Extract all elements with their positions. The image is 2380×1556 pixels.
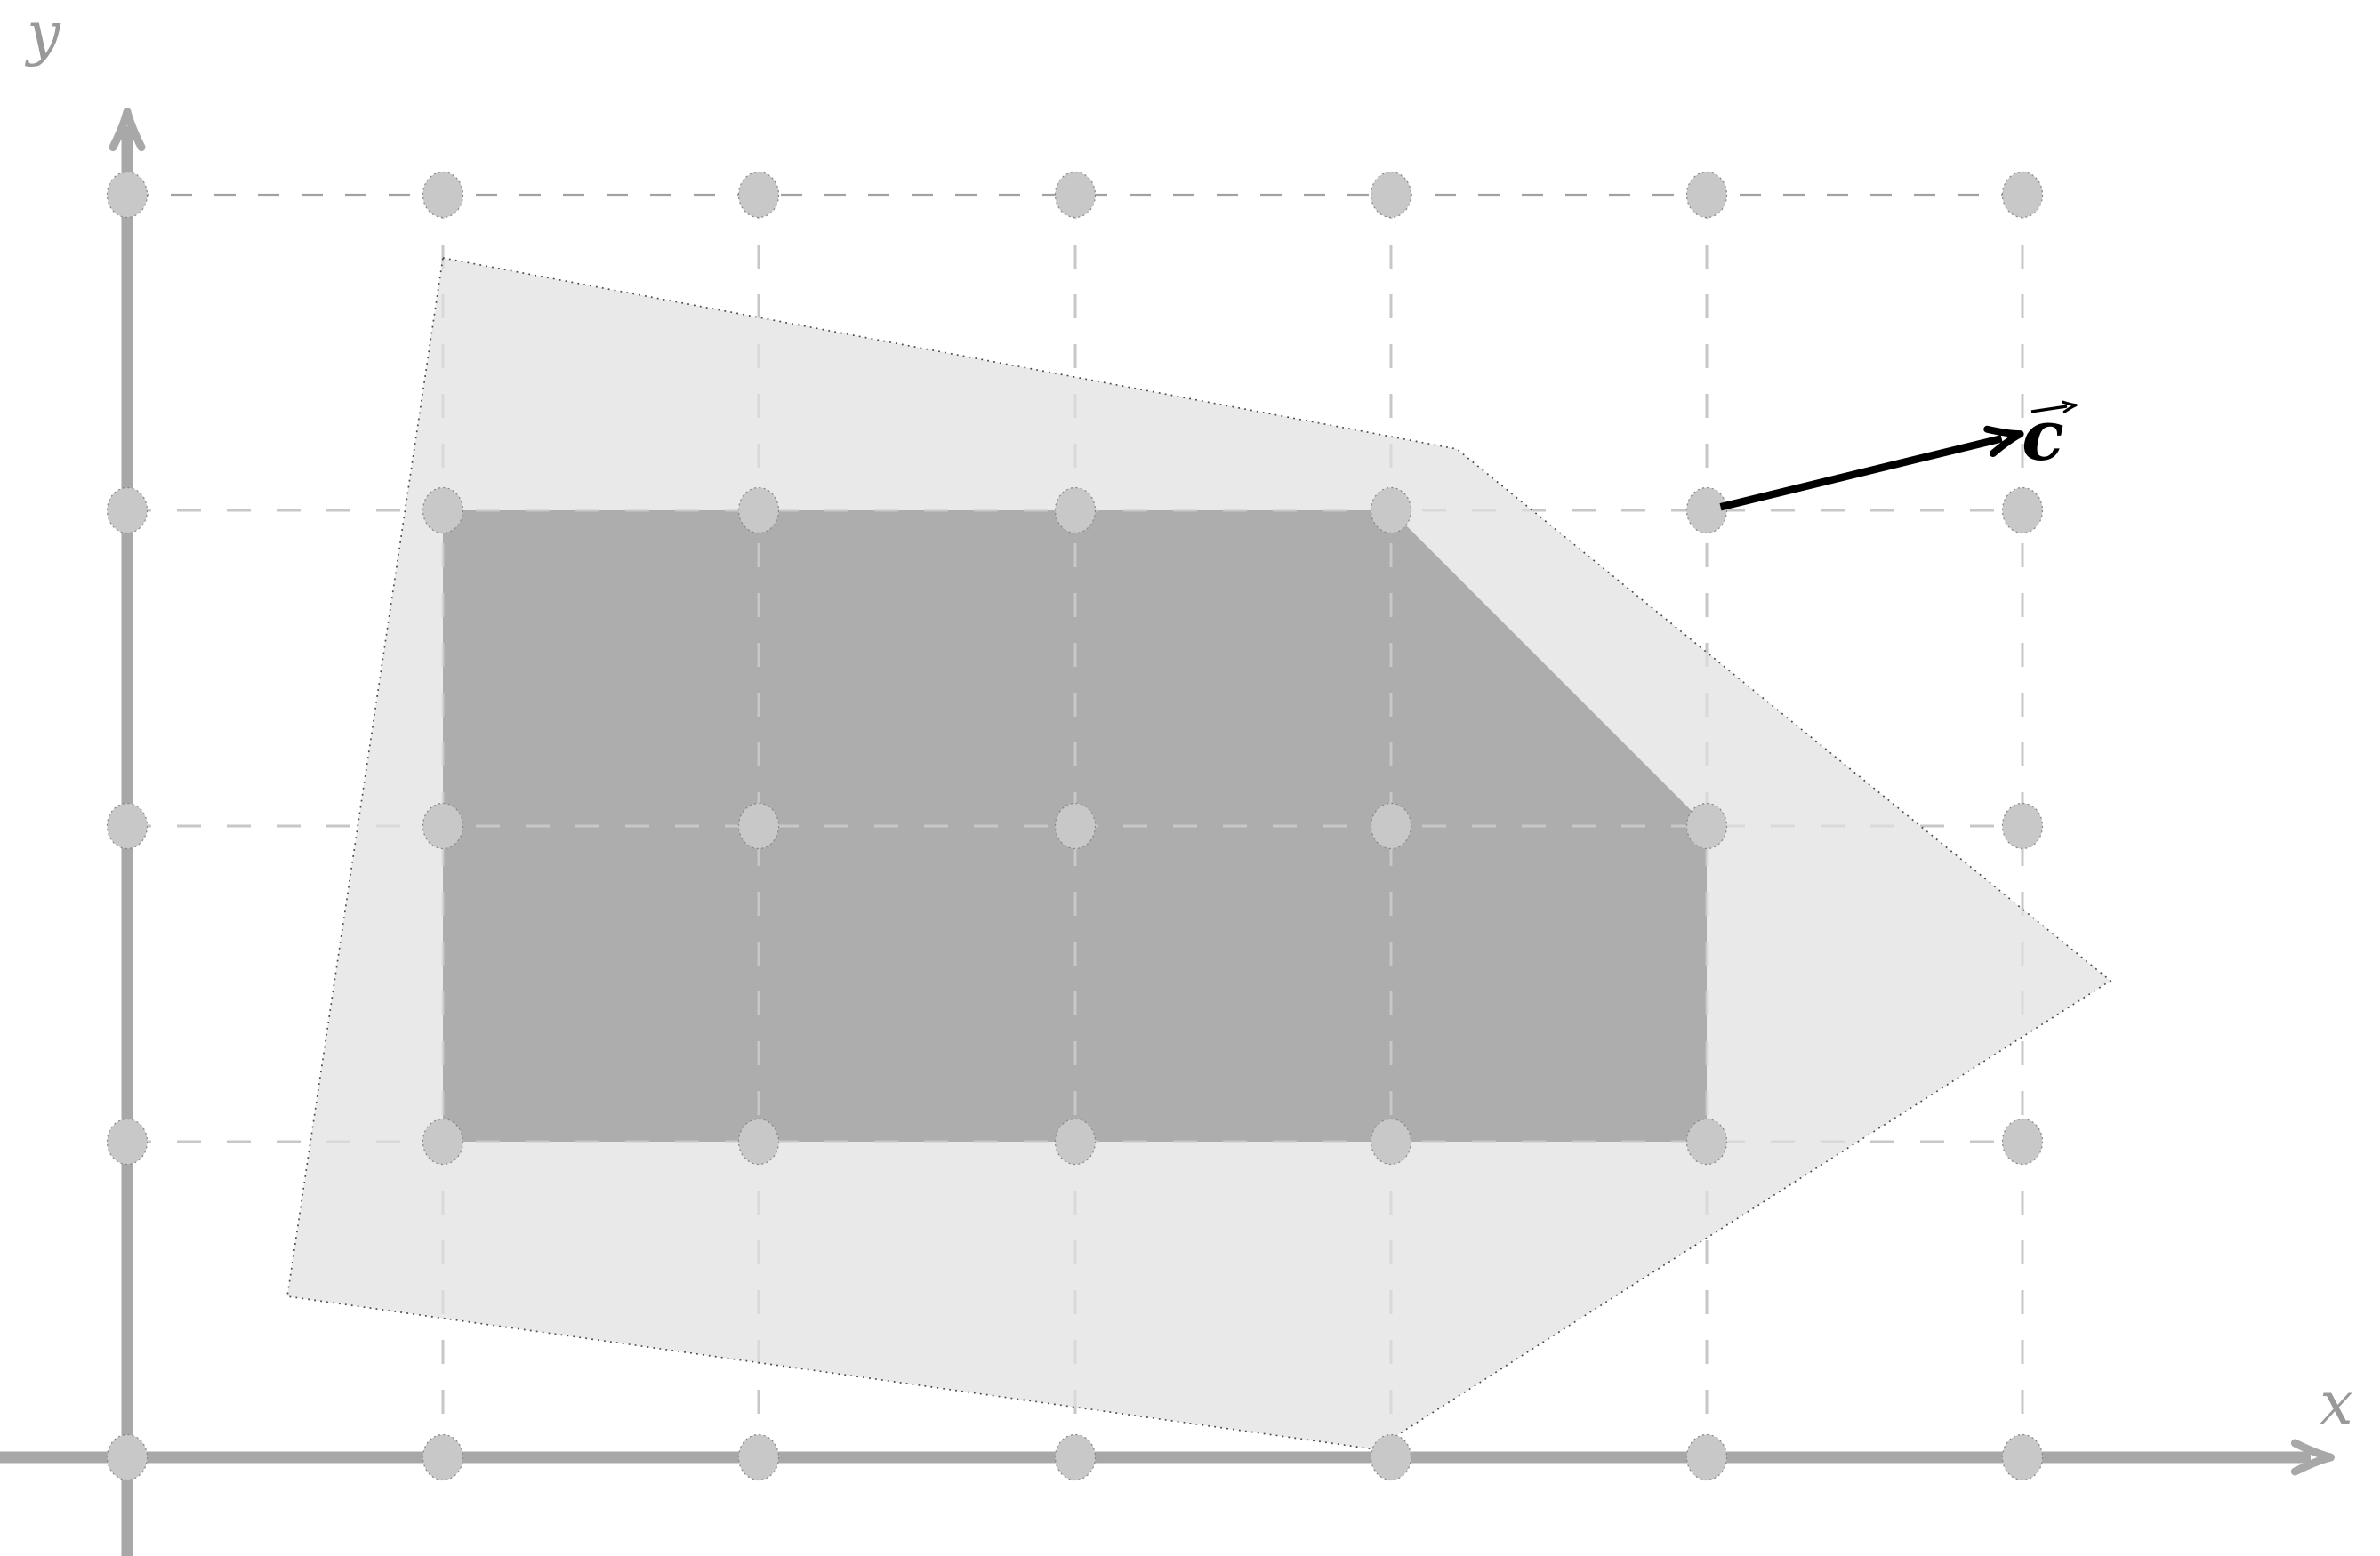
lattice-dot	[739, 1435, 779, 1480]
lattice-dot	[1687, 804, 1727, 849]
lattice-dot	[423, 488, 463, 533]
lattice-dot	[2003, 1435, 2043, 1480]
lattice-dot	[1371, 488, 1411, 533]
lattice-dot	[1371, 1119, 1411, 1165]
lattice-dot	[1056, 1119, 1096, 1165]
lattice-dot	[1687, 1435, 1727, 1480]
lattice-dot	[2003, 804, 2043, 849]
lattice-dot	[2003, 1119, 2043, 1165]
lattice-dot	[108, 172, 148, 218]
lattice-polytope-figure: y x c	[0, 0, 2380, 1556]
lattice-dot	[108, 1435, 148, 1480]
lattice-dot	[739, 804, 779, 849]
lattice-dot	[2003, 488, 2043, 533]
objective-vector	[1721, 421, 2023, 507]
lattice-dot	[2003, 172, 2043, 218]
y-axis-label: y	[24, 0, 60, 68]
vector-c-label: c	[2022, 396, 2064, 477]
lattice-dot	[108, 488, 148, 533]
lattice-dot	[1687, 1119, 1727, 1165]
lattice-dot	[423, 1119, 463, 1165]
lattice-dot	[423, 172, 463, 218]
lattice-dot	[1056, 804, 1096, 849]
lattice-dot	[739, 488, 779, 533]
lattice-dot	[108, 1119, 148, 1165]
lattice-dot	[1371, 172, 1411, 218]
lattice-dot	[739, 172, 779, 218]
figure-layers	[0, 112, 2330, 1556]
lattice-dot	[1056, 1435, 1096, 1480]
objective-vector-line	[1721, 438, 2002, 507]
lattice-dot	[1056, 488, 1096, 533]
lattice-dot	[423, 804, 463, 849]
lattice-dot	[1371, 1435, 1411, 1480]
x-axis-label: x	[2320, 1369, 2352, 1438]
lattice-dot	[1687, 172, 1727, 218]
lattice-dot	[1687, 488, 1727, 533]
lattice-dot	[739, 1119, 779, 1165]
lattice-dot	[108, 804, 148, 849]
lattice-dot	[1371, 804, 1411, 849]
diagram-canvas: y x c	[0, 0, 2380, 1556]
lattice-dot	[1056, 172, 1096, 218]
lattice-dot	[423, 1435, 463, 1480]
